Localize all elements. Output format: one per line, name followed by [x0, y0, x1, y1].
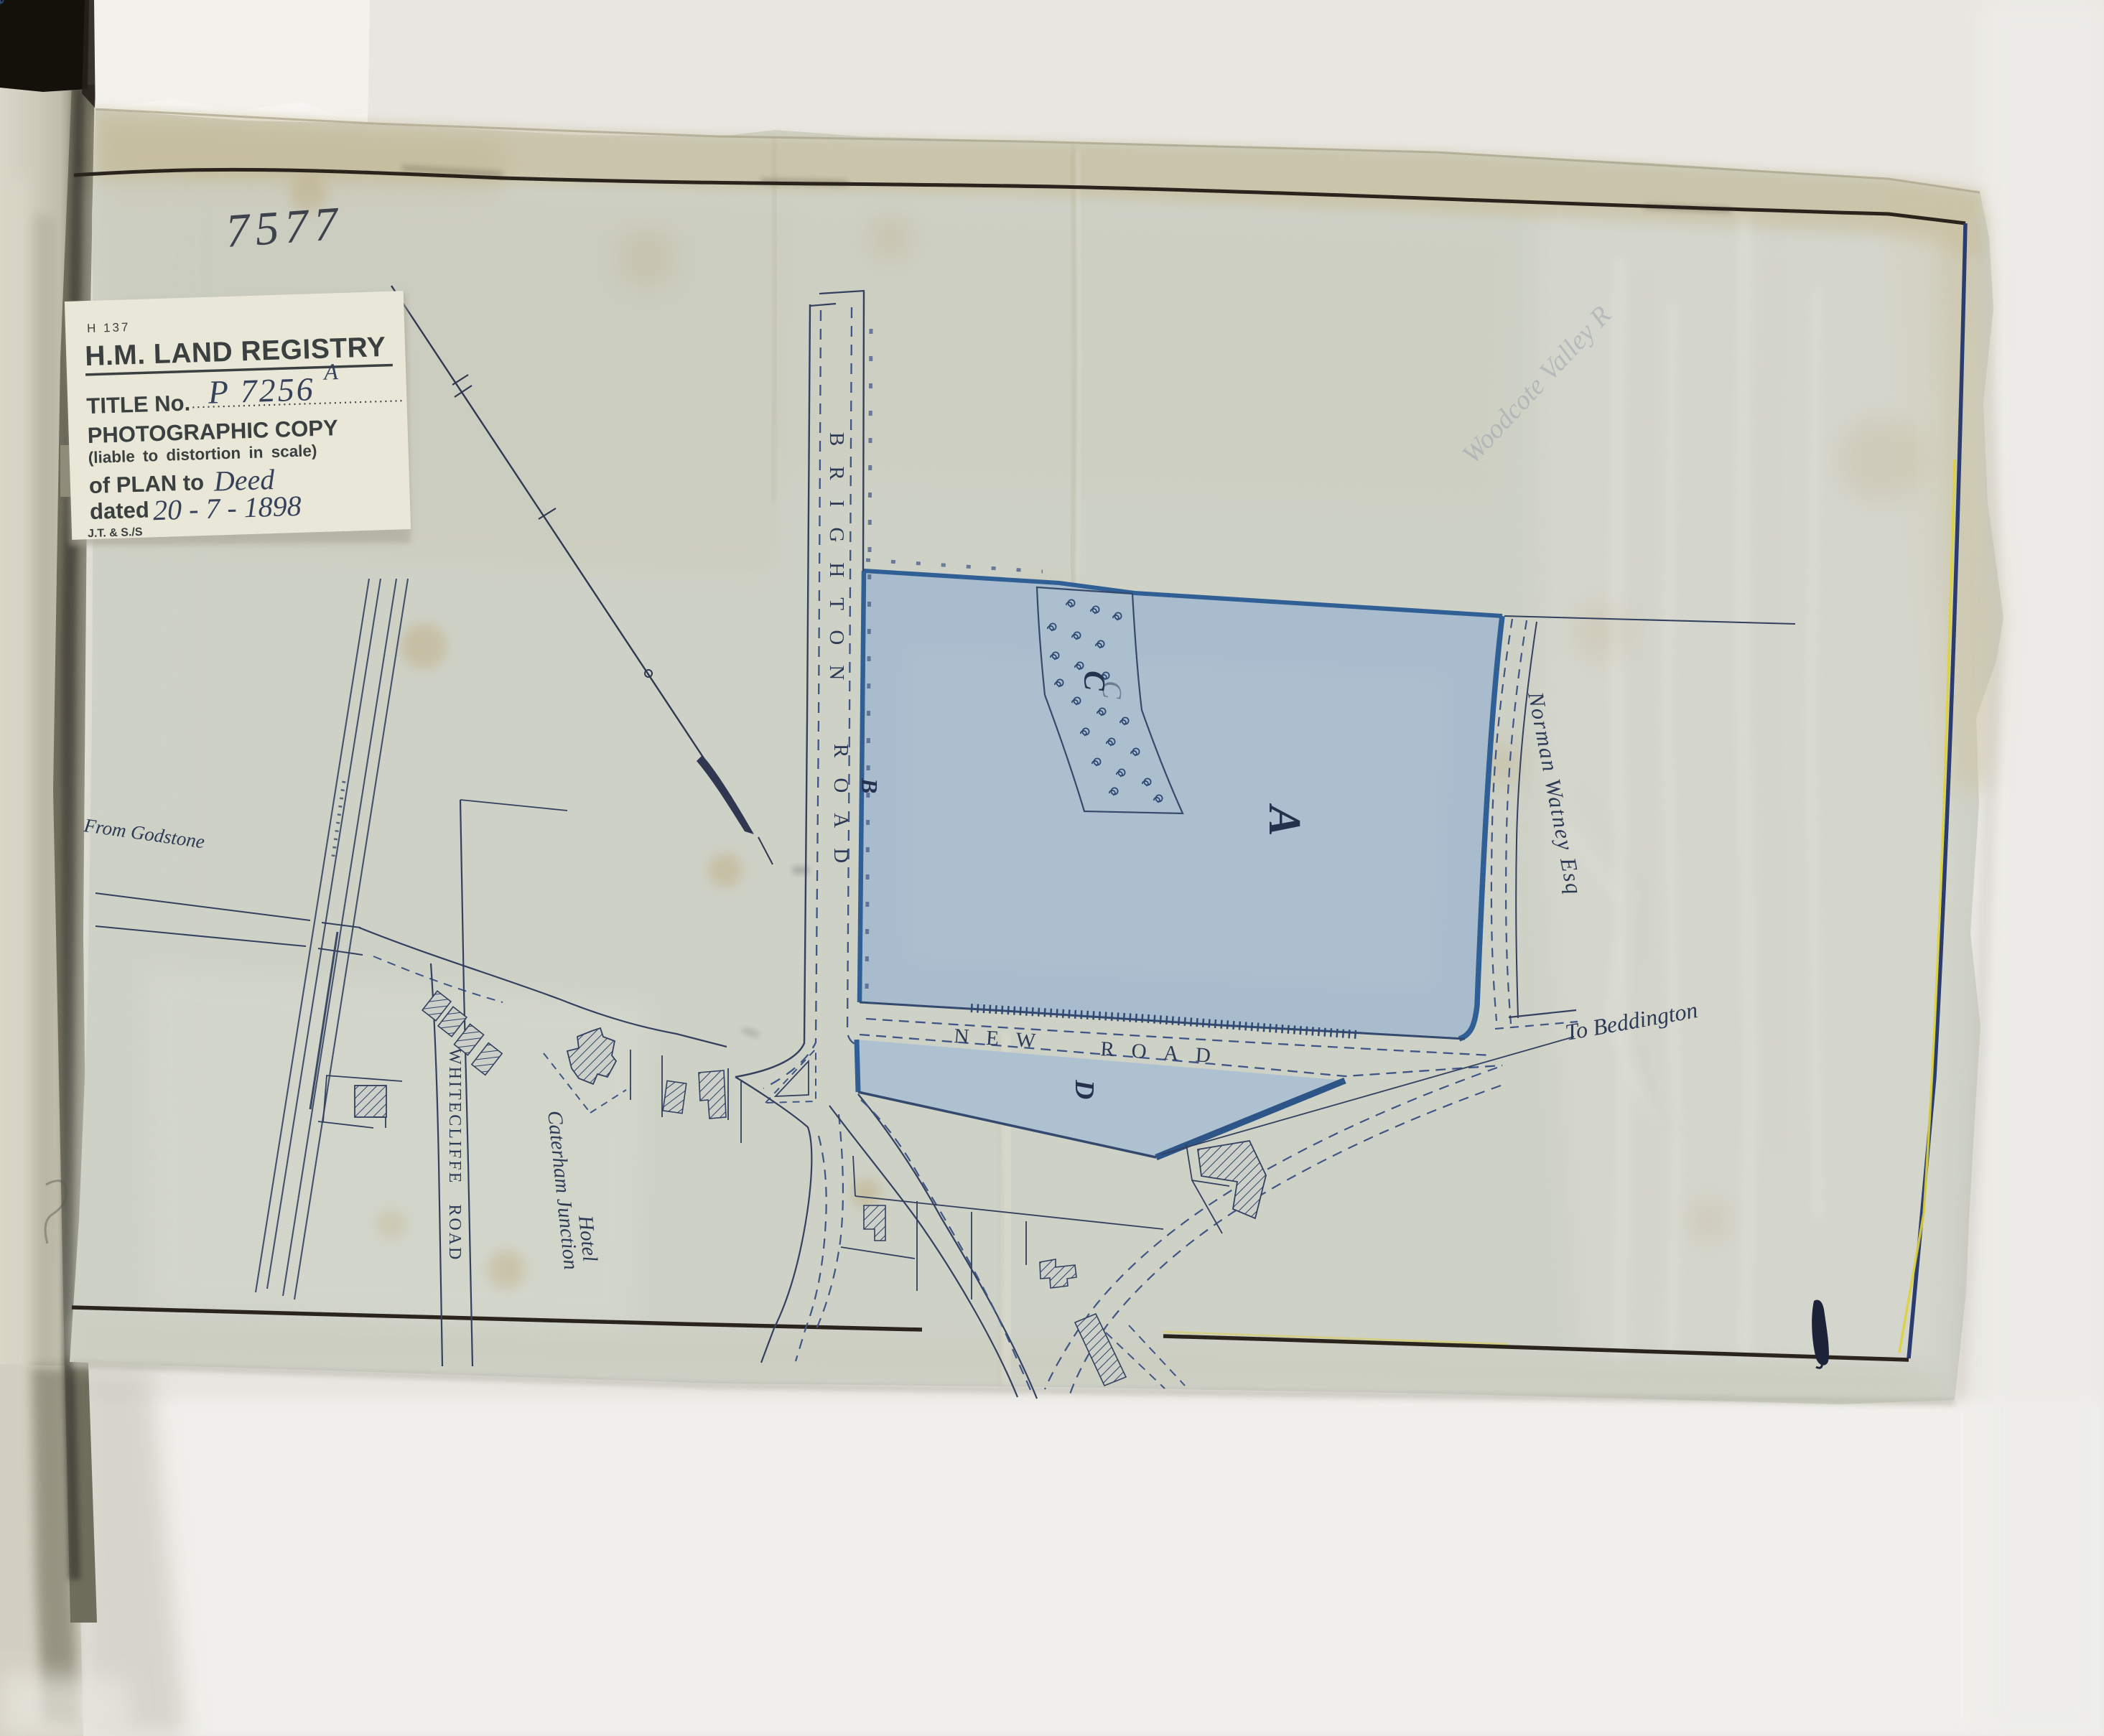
svg-text:D: D [1069, 1079, 1099, 1099]
svg-text:P 7256: P 7256 [207, 370, 315, 411]
svg-text:TITLE No.: TITLE No. [86, 391, 191, 419]
svg-text:WHITECLIFFE ROAD: WHITECLIFFE ROAD [445, 1048, 464, 1261]
svg-text:20 - 7 - 1898: 20 - 7 - 1898 [152, 490, 302, 526]
svg-text:dated: dated [90, 497, 150, 524]
svg-text:B: B [857, 778, 883, 793]
svg-text:A: A [1260, 803, 1311, 836]
svg-text:A: A [322, 358, 339, 385]
svg-text:7577: 7577 [224, 197, 345, 258]
svg-text:H 137: H 137 [87, 320, 131, 335]
svg-text:Hotel: Hotel [574, 1213, 602, 1262]
svg-text:BRIGHTON: BRIGHTON [825, 432, 848, 700]
svg-text:ROAD: ROAD [829, 744, 852, 883]
svg-text:J.T. & S./S: J.T. & S./S [88, 526, 143, 540]
svg-text:C: C [1097, 681, 1127, 699]
